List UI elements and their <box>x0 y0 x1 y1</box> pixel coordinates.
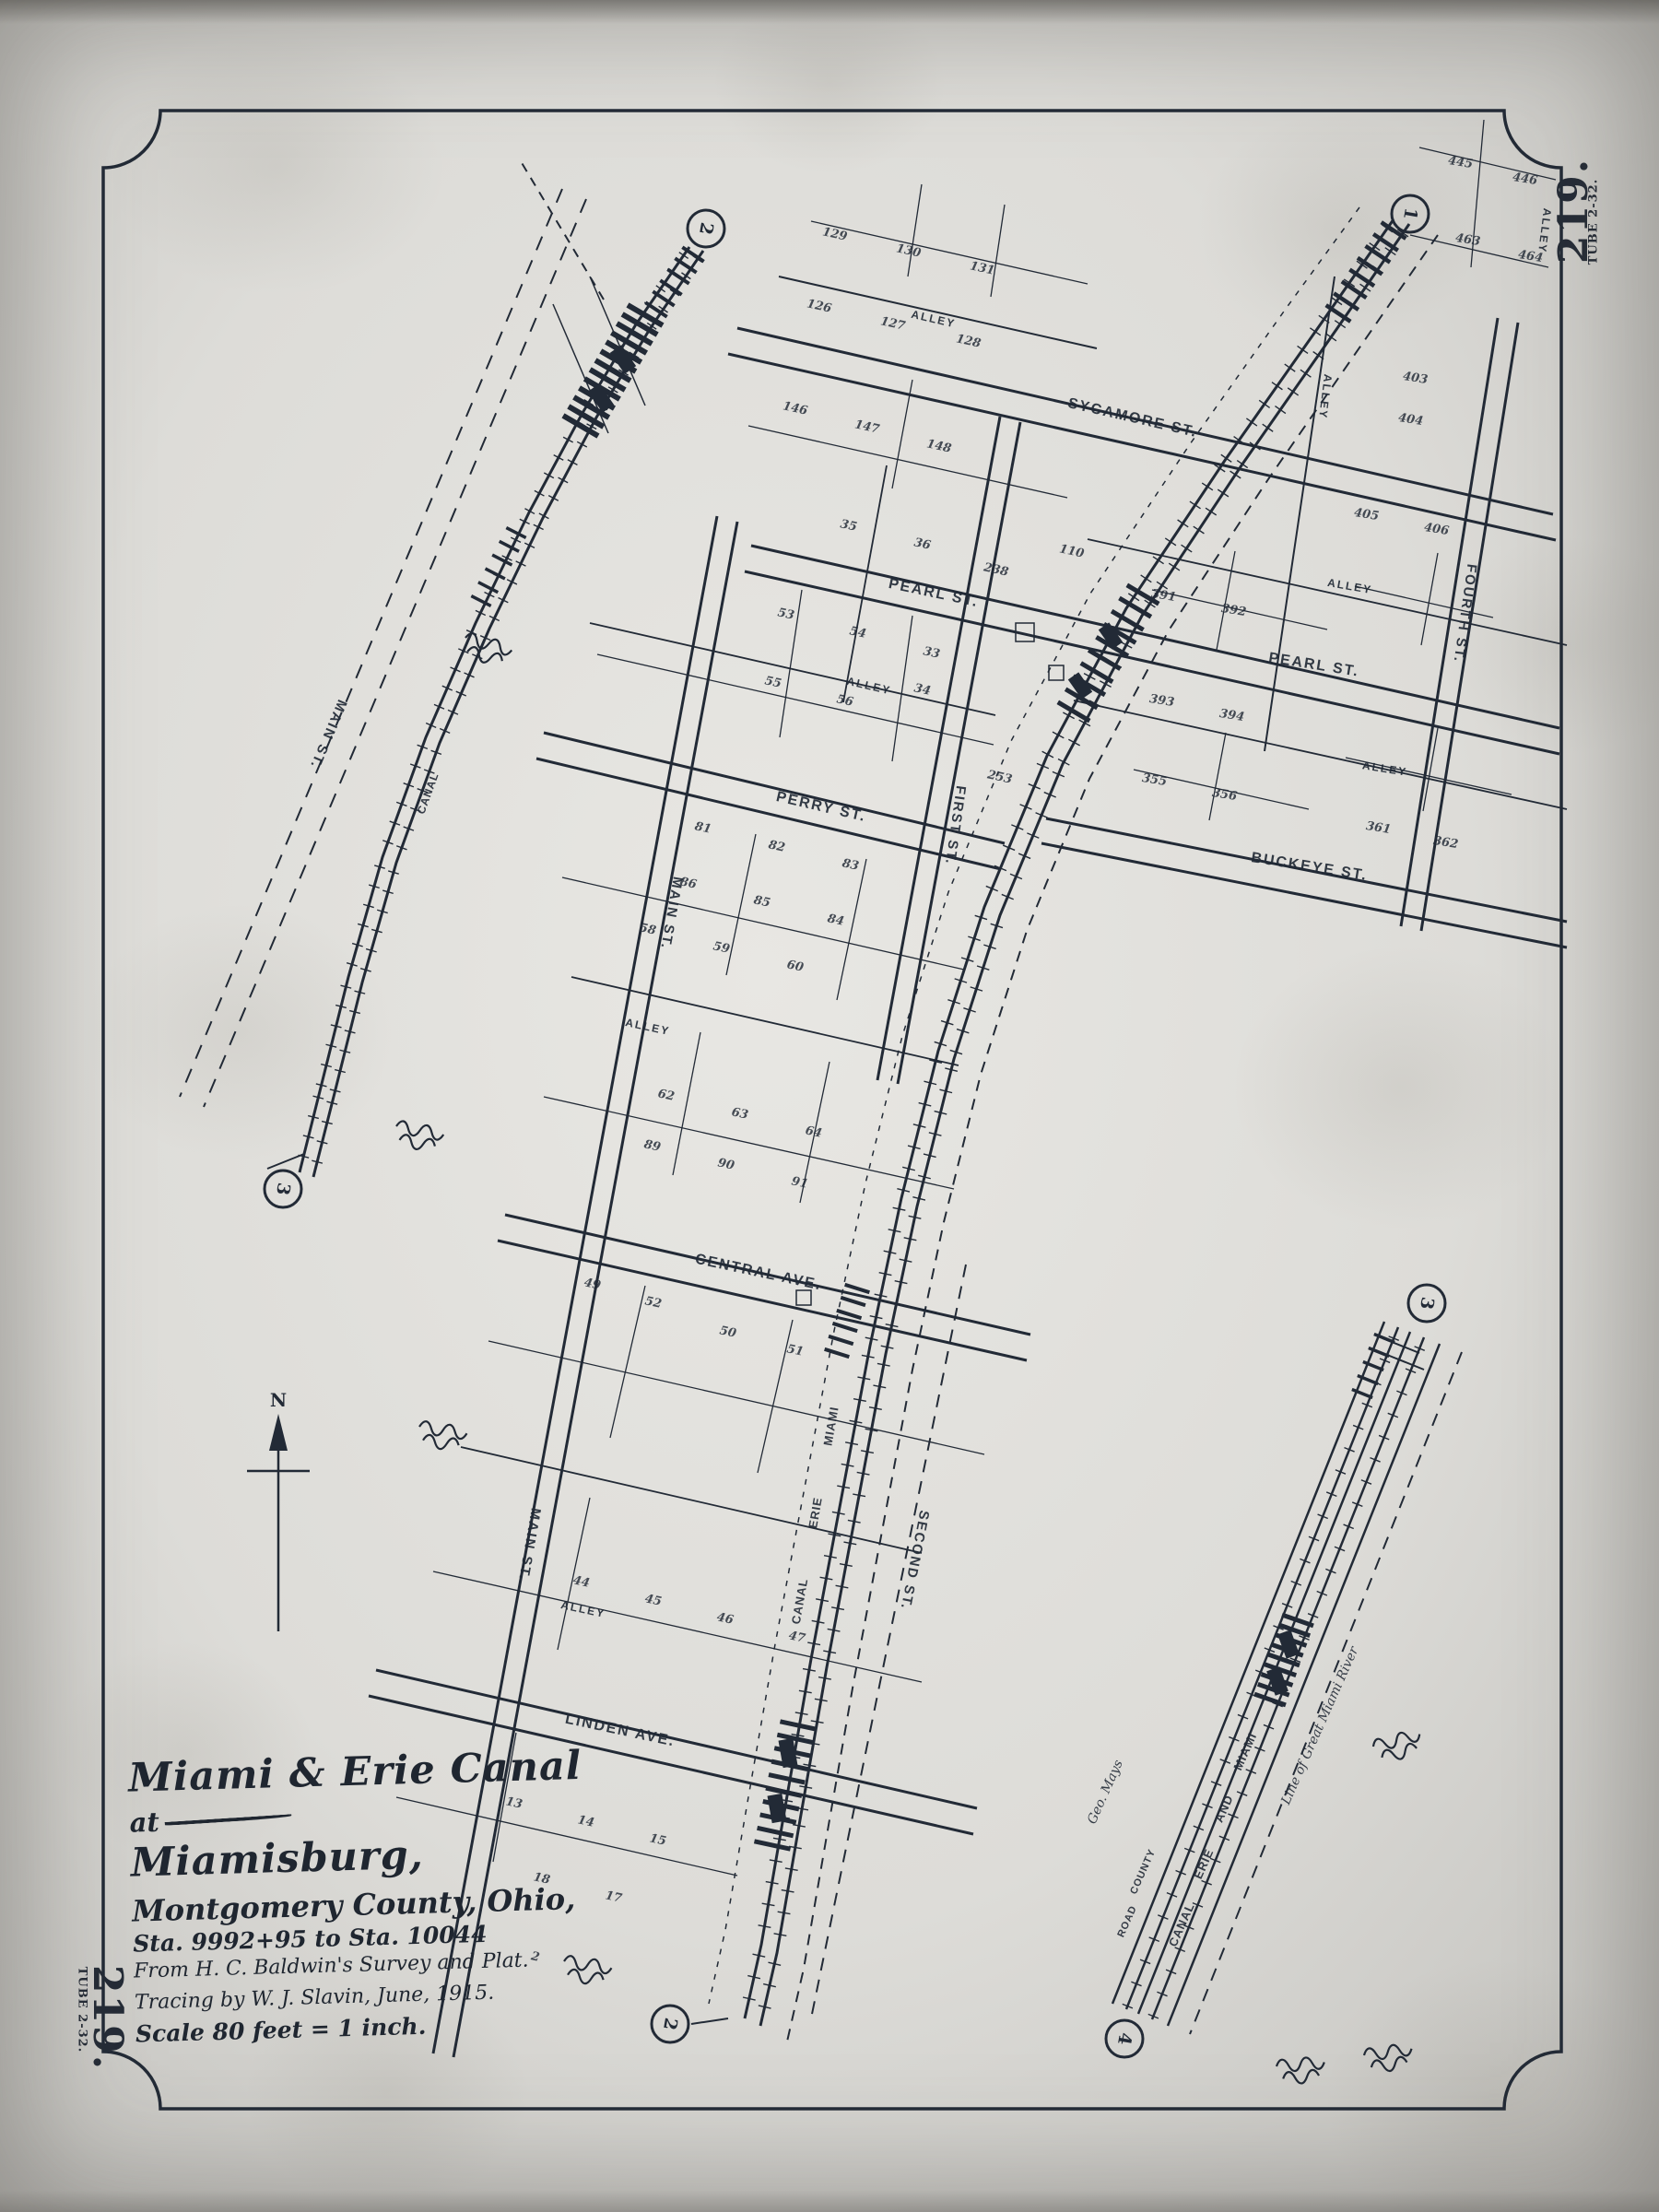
street-line <box>691 2018 728 2024</box>
section-marker-number: 3 <box>1416 1296 1438 1312</box>
lot-number: 84 <box>826 912 845 928</box>
canal-station-tick <box>1310 328 1320 335</box>
canal-label: CANAL <box>1166 1900 1197 1948</box>
street-label: ALLEY <box>559 1598 606 1620</box>
canal-label: Geo. Mays <box>1085 1758 1126 1826</box>
lot-number: 14 <box>576 1813 595 1830</box>
street-line <box>488 1341 984 1454</box>
tube-label-top-right: TUBE 2-32. <box>1586 179 1600 265</box>
canal-station-tick <box>1178 520 1189 527</box>
canal-station-tick <box>1335 321 1346 328</box>
squiggle-mark <box>393 1120 444 1153</box>
lot-number: 126 <box>806 297 833 315</box>
squiggle-mark <box>1276 2056 1325 2086</box>
lot-number: 54 <box>848 624 867 641</box>
canal-label: Line of Great Miami River <box>1278 1643 1362 1807</box>
street-line <box>877 417 1000 1080</box>
squiggle-mark <box>417 1420 467 1452</box>
squiggle-mark <box>1363 2042 1414 2074</box>
street-line <box>562 877 964 970</box>
lock-hatch <box>841 1298 865 1305</box>
canal-label: ERIE <box>806 1496 825 1529</box>
street-line <box>597 654 994 745</box>
lot-number: 44 <box>571 1573 591 1590</box>
canal-line <box>1126 1327 1398 2009</box>
lot-number: 406 <box>1423 521 1450 538</box>
scanned-plat-page: SYCAMORE ST.PEARL ST.PEARL ST.BUCKEYE ST… <box>0 0 1659 2212</box>
canal-station-tick <box>1298 346 1308 353</box>
canal-line <box>1152 1337 1424 2019</box>
street-line <box>204 199 586 1107</box>
lot-number: 129 <box>821 225 849 243</box>
title-line-2: at <box>129 1803 292 1839</box>
street-line <box>590 623 995 715</box>
canal-station-tick <box>1128 594 1139 601</box>
lot-number: 147 <box>853 418 881 436</box>
lot-number: 130 <box>895 241 923 260</box>
section-marker-number: 1 <box>1399 206 1421 222</box>
street-line <box>1209 733 1226 820</box>
lot-number: 446 <box>1512 171 1538 188</box>
canal-station-tick <box>1360 284 1371 291</box>
canal-station-tick <box>1246 418 1256 426</box>
lot-number: 2 <box>529 1949 541 1965</box>
canal-line <box>300 247 689 1172</box>
lot-number: 59 <box>712 939 731 956</box>
street-line <box>811 1265 966 2018</box>
street-label: CENTRAL AVE. <box>694 1252 824 1294</box>
street-line <box>1217 551 1235 650</box>
lot-number: 394 <box>1218 707 1245 724</box>
page-number-bottom-left: 219. <box>84 1965 131 2071</box>
title-line-3: Miamisburg, <box>130 1832 424 1887</box>
lot-number: 17 <box>604 1888 623 1905</box>
lot-number: 89 <box>642 1137 662 1154</box>
canal-station-tick <box>1263 424 1273 431</box>
street-line <box>1074 700 1567 809</box>
street-line <box>1387 1355 1424 1370</box>
section-marker-number: 4 <box>1113 2031 1135 2047</box>
canal-line <box>313 251 703 1177</box>
lot-number: 146 <box>782 399 809 418</box>
canal-label: CANAL <box>789 1577 811 1625</box>
canal-station-tick <box>1141 575 1152 582</box>
lot-number: 64 <box>804 1124 823 1140</box>
canal-station-tick <box>1221 454 1231 462</box>
lot-number: 355 <box>1141 771 1168 789</box>
canal-station-tick <box>1272 382 1282 390</box>
street-line <box>180 189 562 1097</box>
lock-hatch <box>758 1828 794 1835</box>
swash-flourish <box>165 1814 292 1826</box>
lot-number: 91 <box>790 1174 809 1191</box>
lot-number: 13 <box>504 1794 524 1811</box>
lot-number: 393 <box>1148 692 1175 710</box>
canal-station-tick <box>1285 364 1295 371</box>
lock-hatch <box>754 1841 790 1849</box>
canal-station-tick <box>1153 557 1164 564</box>
lot-number: 128 <box>955 332 982 350</box>
lot-number: 464 <box>1517 248 1544 265</box>
street-line <box>758 1320 793 1473</box>
canal-station-tick <box>1325 334 1335 341</box>
lock-hatch <box>845 1285 870 1292</box>
street-label: MAIN ST. <box>307 698 350 771</box>
lock-hatch <box>832 1324 857 1331</box>
lot-number: 47 <box>787 1629 806 1645</box>
lot-number: 110 <box>1058 542 1086 560</box>
lot-number: 361 <box>1365 819 1392 837</box>
lot-number: 127 <box>879 314 907 333</box>
street-label: PEARL ST. <box>1267 650 1360 679</box>
street-line <box>673 1032 700 1175</box>
canal-station-tick <box>1237 461 1247 468</box>
lock-hatch <box>766 1788 802 1795</box>
lot-number: 362 <box>1432 834 1459 852</box>
north-arrow: N <box>247 1389 310 1631</box>
street-line <box>892 616 912 761</box>
lot-number: 82 <box>767 838 786 854</box>
lot-number: 62 <box>656 1087 676 1103</box>
building-outline <box>796 1290 811 1305</box>
canal-station-tick <box>1259 400 1269 407</box>
street-line <box>544 733 1005 843</box>
lot-number: 46 <box>715 1610 735 1627</box>
street-line <box>728 354 1556 540</box>
lot-number: 404 <box>1397 411 1424 429</box>
street-line <box>908 184 922 276</box>
canal-label: CANAL <box>415 771 441 816</box>
canal-label: MIAMI <box>820 1406 841 1447</box>
street-line <box>1421 553 1438 645</box>
street-label: ALLEY <box>1361 759 1408 779</box>
street-line <box>433 1571 922 1682</box>
section-marker-number: 2 <box>695 221 717 237</box>
lot-number: 148 <box>925 437 953 455</box>
lot-number: 445 <box>1447 154 1474 171</box>
street-line <box>610 1286 645 1438</box>
lot-number: 36 <box>912 535 932 552</box>
street-label: ALLEY <box>624 1016 671 1038</box>
street-line <box>1168 1344 1440 2026</box>
street-label: MAIN ST. <box>515 1507 544 1583</box>
lot-number: 55 <box>763 674 782 690</box>
canal-station-tick <box>1165 538 1176 546</box>
street-line <box>433 516 717 2053</box>
street-line <box>267 1154 304 1169</box>
canal-line <box>709 207 1359 2004</box>
canal-station-tick <box>1288 388 1298 395</box>
street-line <box>1401 318 1498 926</box>
street-line <box>396 1797 737 1876</box>
lot-number: 253 <box>985 768 1014 787</box>
lot-number: 403 <box>1402 370 1429 387</box>
canal-station-tick <box>1275 406 1285 414</box>
canal-label: ROAD <box>1115 1904 1139 1939</box>
street-line <box>748 426 1067 498</box>
canal-station-tick <box>1300 370 1311 377</box>
street-line <box>837 859 866 1000</box>
north-arrow-head <box>269 1414 288 1451</box>
street-line <box>991 205 1005 297</box>
lot-number: 15 <box>648 1831 667 1848</box>
lock-hatch <box>500 541 519 551</box>
lot-number: 56 <box>835 692 854 709</box>
tube-label-bottom-left: TUBE 2-32. <box>75 1967 88 2053</box>
lot-number: 392 <box>1220 602 1247 619</box>
street-line <box>726 834 756 975</box>
lot-number: 60 <box>785 958 805 974</box>
lot-number: 63 <box>730 1105 749 1122</box>
canal-label: COUNTY <box>1128 1847 1158 1896</box>
lock-hatch <box>825 1349 850 1357</box>
lot-number: 49 <box>582 1276 602 1292</box>
lot-number: 34 <box>912 681 932 698</box>
section-marker-number: 3 <box>272 1182 294 1197</box>
lot-number: 405 <box>1353 506 1380 524</box>
lock-chamber <box>1099 622 1123 649</box>
squiggle-mark <box>1371 1728 1424 1765</box>
street-label: BUCKEYE ST. <box>1250 850 1369 884</box>
lot-number: 35 <box>839 517 858 534</box>
street-line <box>811 221 1088 284</box>
building-outline <box>1049 665 1064 680</box>
lot-number: 50 <box>718 1324 737 1340</box>
lot-number: 51 <box>785 1342 805 1359</box>
lot-number: 33 <box>922 644 941 661</box>
lot-number: 90 <box>716 1156 735 1172</box>
north-label: N <box>270 1389 287 1411</box>
squiggle-mark <box>561 1955 612 1986</box>
lot-number: 53 <box>776 606 795 622</box>
canal-station-tick <box>1190 501 1201 509</box>
section-marker-number: 2 <box>659 2017 681 2032</box>
lot-number: 52 <box>643 1294 663 1311</box>
lot-number: 83 <box>841 856 860 873</box>
street-label: ALLEY <box>845 675 892 698</box>
lot-number: 85 <box>752 893 771 910</box>
lot-number: 45 <box>643 1592 663 1608</box>
street-line <box>892 380 912 488</box>
street-line <box>536 759 1001 869</box>
lot-number: 81 <box>693 819 712 836</box>
street-label: SECOND ST. <box>898 1509 933 1611</box>
street-line <box>843 465 887 702</box>
lot-number: 238 <box>982 560 1010 580</box>
street-line <box>498 1241 1027 1360</box>
lot-number: 356 <box>1211 786 1238 804</box>
canal-station-tick <box>1202 483 1213 490</box>
lock-hatch <box>769 1775 805 1783</box>
